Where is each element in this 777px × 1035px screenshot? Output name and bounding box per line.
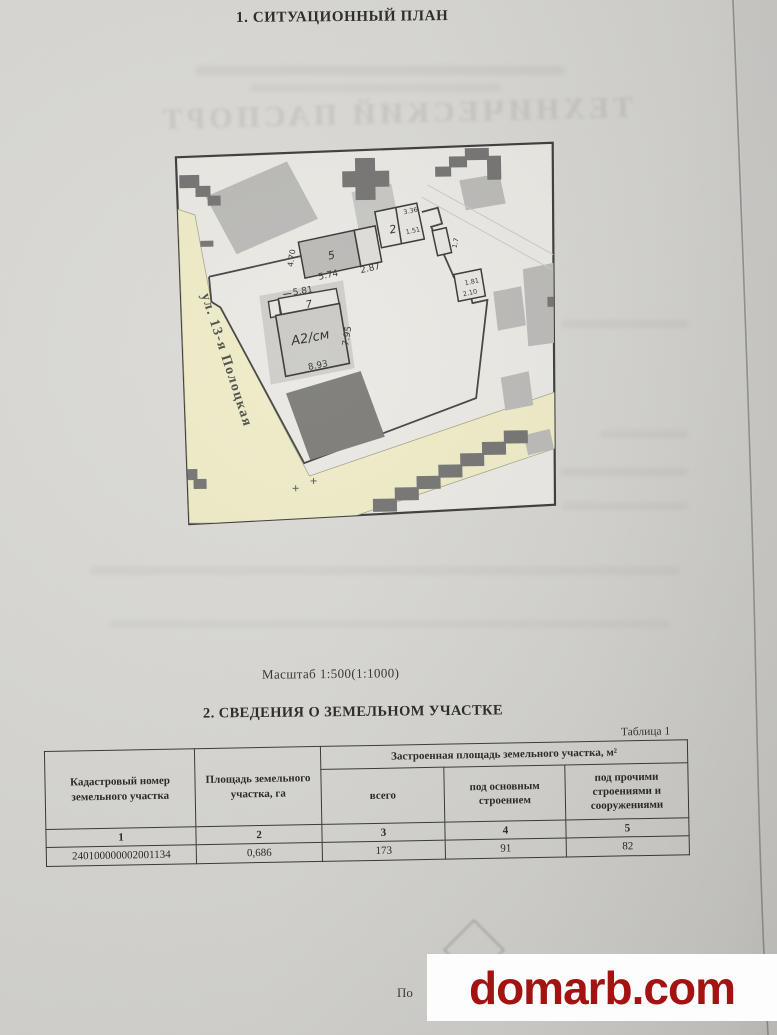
col2-header: Площадь земельного участка, га bbox=[194, 746, 321, 826]
section-2-title: 2. СВЕДЕНИЯ О ЗЕМЕЛЬНОМ УЧАСТКЕ bbox=[203, 702, 503, 722]
col5-header: под прочими строениями и сооружениями bbox=[565, 763, 689, 820]
bleedthrough-line bbox=[560, 468, 688, 476]
num-cell: 2 bbox=[196, 824, 322, 844]
building-block bbox=[493, 286, 526, 331]
bleedthrough-line bbox=[195, 66, 565, 75]
land-plot-table: Кадастровый номер земельного участка Пло… bbox=[44, 739, 690, 867]
bleedthrough-line bbox=[562, 502, 688, 510]
scanned-document-page: ТЕХНИЧЕСКИЙ ПАСПОРТ 1. СИТУАЦИОННЫЙ ПЛАН bbox=[0, 0, 777, 1035]
built-area-main: 91 bbox=[445, 838, 566, 859]
table-caption: Таблица 1 bbox=[621, 726, 670, 739]
built-area-total: 173 bbox=[322, 840, 445, 861]
bleedthrough-line bbox=[250, 84, 500, 92]
bleedthrough-line bbox=[90, 566, 680, 575]
built-area-other: 82 bbox=[566, 836, 689, 857]
watermark-text: domarb.com bbox=[469, 961, 735, 1015]
num-cell: 5 bbox=[566, 818, 689, 838]
num-cell: 4 bbox=[445, 820, 566, 840]
text-fragment: По bbox=[397, 985, 413, 1001]
page-title: 1. СИТУАЦИОННЫЙ ПЛАН bbox=[236, 8, 448, 27]
col3-header: всего bbox=[321, 767, 445, 824]
building-block bbox=[501, 371, 534, 411]
bleedthrough-line bbox=[600, 430, 688, 438]
bleedthrough-line bbox=[110, 620, 670, 628]
col1-header: Кадастровый номер земельного участка bbox=[44, 749, 195, 830]
situational-plan-map: ул. 13-я Полоцкая 5 2 7 А2/см 5.81 8.93 … bbox=[169, 139, 566, 531]
col4-header: под основным строением bbox=[444, 765, 566, 822]
plot-area: 0,686 bbox=[196, 842, 322, 863]
cadastral-number: 240100000002001134 bbox=[46, 845, 196, 867]
scale-note: Масштаб 1:500(1:1000) bbox=[262, 665, 400, 682]
bleedthrough-line bbox=[562, 320, 688, 328]
watermark-box: domarb.com bbox=[427, 954, 777, 1021]
num-cell: 3 bbox=[322, 822, 445, 842]
